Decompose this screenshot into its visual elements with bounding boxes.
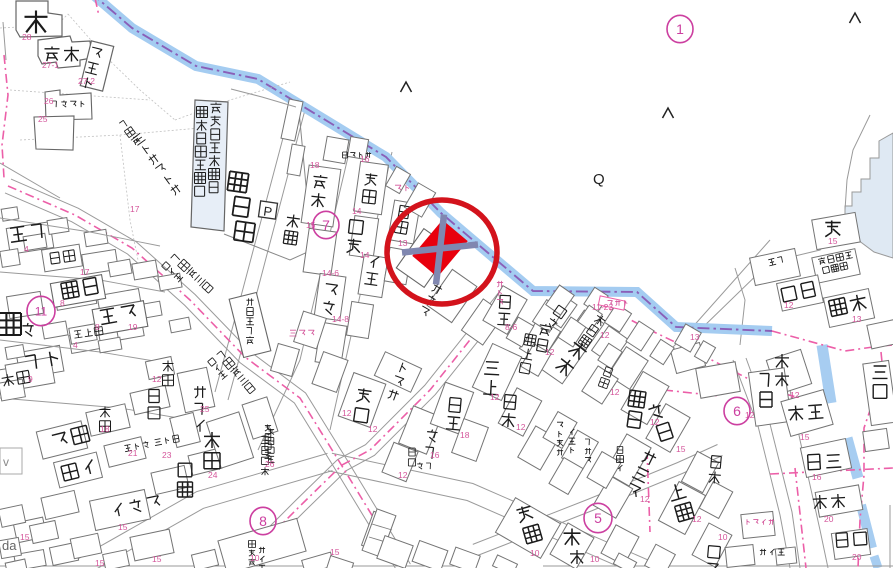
svg-text:18: 18	[100, 424, 110, 434]
svg-text:19: 19	[128, 322, 138, 332]
svg-text:12: 12	[152, 374, 162, 384]
svg-text:15: 15	[676, 444, 686, 454]
svg-text:16: 16	[360, 154, 370, 164]
svg-text:8: 8	[259, 513, 267, 529]
svg-text:13: 13	[398, 238, 408, 248]
svg-text:10: 10	[250, 553, 260, 563]
svg-text:27-2: 27-2	[78, 76, 95, 86]
svg-text:12: 12	[610, 387, 620, 397]
svg-text:21: 21	[128, 448, 138, 458]
svg-text:12: 12	[650, 417, 660, 427]
svg-text:23: 23	[162, 450, 172, 460]
svg-text:8-6: 8-6	[505, 322, 518, 332]
svg-text:13: 13	[852, 314, 862, 324]
svg-text:20: 20	[824, 514, 834, 524]
svg-text:13: 13	[690, 332, 700, 342]
svg-text:15: 15	[20, 532, 30, 542]
svg-text:15: 15	[800, 432, 810, 442]
svg-text:10: 10	[718, 532, 728, 542]
svg-text:8: 8	[95, 322, 100, 332]
svg-text:1: 1	[676, 21, 684, 37]
svg-text:12: 12	[398, 470, 408, 480]
svg-text:25: 25	[200, 404, 210, 414]
svg-text:15: 15	[118, 522, 128, 532]
svg-text:10: 10	[530, 548, 540, 558]
svg-text:12: 12	[516, 422, 526, 432]
svg-text:v: v	[3, 455, 9, 469]
svg-text:14-8: 14-8	[332, 314, 349, 324]
svg-text:12: 12	[640, 494, 650, 504]
svg-text:12: 12	[784, 300, 794, 310]
svg-text:Q: Q	[593, 171, 605, 188]
svg-text:8: 8	[60, 298, 65, 308]
svg-text:da: da	[2, 538, 17, 553]
svg-text:4: 4	[73, 340, 78, 350]
svg-text:11: 11	[35, 304, 48, 318]
svg-text:15: 15	[330, 547, 340, 557]
svg-text:5: 5	[594, 510, 602, 526]
svg-text:16: 16	[430, 450, 440, 460]
svg-text:18: 18	[310, 160, 320, 170]
svg-text:4: 4	[24, 244, 29, 254]
svg-text:25: 25	[38, 114, 48, 124]
svg-text:14: 14	[360, 250, 370, 260]
svg-text:12: 12	[342, 408, 352, 418]
svg-text:11-23: 11-23	[592, 302, 613, 312]
svg-text:18: 18	[460, 430, 470, 440]
svg-text:28: 28	[22, 32, 32, 42]
svg-text:12: 12	[790, 390, 800, 400]
svg-text:15: 15	[95, 558, 105, 568]
svg-text:26: 26	[265, 459, 275, 469]
svg-text:12: 12	[692, 514, 702, 524]
svg-text:14: 14	[352, 206, 362, 216]
svg-text:6: 6	[733, 403, 741, 419]
svg-text:16: 16	[812, 472, 822, 482]
svg-text:7: 7	[322, 217, 330, 233]
svg-text:12: 12	[545, 347, 555, 357]
svg-text:15: 15	[306, 220, 316, 230]
svg-text:12: 12	[368, 424, 378, 434]
svg-text:24: 24	[208, 470, 218, 480]
svg-text:27-1: 27-1	[42, 60, 59, 70]
svg-text:15: 15	[828, 236, 838, 246]
svg-text:17: 17	[80, 267, 90, 277]
svg-text:26: 26	[44, 96, 54, 106]
svg-text:9: 9	[28, 374, 33, 384]
svg-text:17: 17	[130, 204, 140, 214]
svg-text:12: 12	[490, 392, 500, 402]
svg-text:10: 10	[590, 554, 600, 564]
svg-text:20: 20	[852, 552, 862, 562]
svg-text:14-6: 14-6	[322, 268, 339, 278]
svg-text:12: 12	[600, 330, 610, 340]
svg-text:15: 15	[152, 554, 162, 564]
